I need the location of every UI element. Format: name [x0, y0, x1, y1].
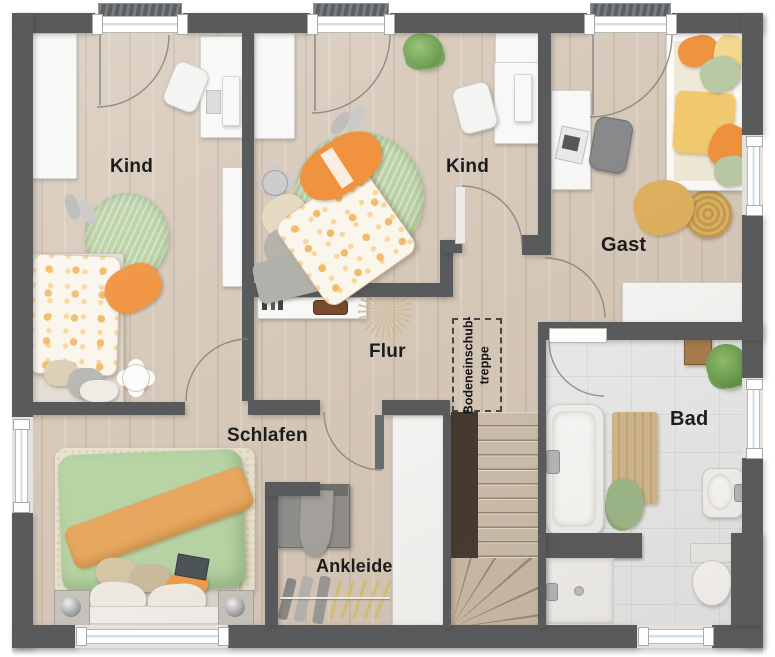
window-cap [307, 14, 318, 35]
room-label-kind-middle: Kind [446, 156, 489, 178]
laptop-keys [562, 134, 581, 151]
plant-icon [403, 33, 443, 69]
room-label-schlafen: Schlafen [227, 425, 308, 447]
wall-segment [248, 400, 320, 415]
stair-void [451, 412, 480, 558]
room-label-flur: Flur [369, 341, 406, 363]
bath-faucet-icon [546, 450, 560, 474]
window [641, 629, 710, 644]
window-cap [177, 14, 188, 35]
window [747, 142, 760, 210]
flower-side-table [262, 170, 288, 196]
window-cap [746, 379, 763, 390]
pillow [80, 380, 118, 402]
wall-segment [443, 415, 451, 628]
window [587, 16, 674, 33]
window-cap [76, 627, 87, 646]
stair-treads [478, 412, 538, 558]
keyboard-icon [206, 90, 221, 114]
room-label-ankleide: Ankleide [316, 556, 393, 577]
window-cap [13, 419, 30, 430]
wardrobe [222, 167, 244, 287]
window [80, 629, 225, 644]
wall-segment [183, 13, 310, 33]
wall-segment [382, 400, 450, 415]
wall-segment [12, 13, 33, 417]
sphere-lamp-icon [225, 597, 245, 617]
built-in-wardrobe [392, 415, 445, 627]
wall-segment [538, 340, 546, 628]
window-cap [13, 502, 30, 513]
stair-winders [451, 558, 538, 628]
sphere-lamp-icon [61, 597, 81, 617]
window-cap [384, 14, 395, 35]
window-cap [584, 14, 595, 35]
floor-plan: Bodeneinschub- treppe [0, 0, 775, 657]
wall-segment [228, 625, 637, 648]
door-leaf [549, 328, 607, 343]
wall-segment [265, 482, 278, 625]
wall-segment [522, 235, 538, 255]
window-cap [746, 136, 763, 147]
window-cap [218, 627, 229, 646]
clothes-rail [280, 597, 390, 599]
window-cap [666, 14, 677, 35]
wall-segment [12, 625, 75, 648]
room-label-kind-left: Kind [110, 156, 153, 178]
window-cap [703, 627, 714, 646]
window [95, 16, 185, 33]
wall-segment [731, 533, 763, 625]
staircase [451, 412, 538, 628]
wall-segment [265, 482, 320, 496]
shower-drain-icon [574, 586, 584, 596]
window [310, 16, 392, 33]
attic-stairs-marker: Bodeneinschub- treppe [452, 318, 502, 412]
wall-segment [742, 13, 763, 135]
window-cap [746, 205, 763, 216]
wall-segment [242, 33, 254, 401]
sideboard [622, 282, 744, 324]
monitor-icon [222, 76, 240, 126]
towels [606, 478, 644, 528]
window [15, 424, 28, 508]
wall-segment [33, 402, 185, 415]
bed-duvet [29, 254, 121, 377]
wall-segment [712, 625, 763, 648]
shower-faucet-icon [546, 583, 558, 601]
wardrobe [254, 33, 295, 139]
exterior-shadow [12, 648, 763, 656]
window-cap [638, 627, 649, 646]
room-label-bad: Bad [670, 408, 708, 431]
perfume-bottles-icon [278, 300, 283, 310]
room-label-gast: Gast [601, 234, 646, 257]
wardrobe [30, 33, 77, 179]
wall-segment [390, 13, 587, 33]
wall-segment [742, 215, 763, 378]
wall-segment [538, 33, 551, 255]
window [747, 385, 760, 453]
attic-stairs-label: Bodeneinschub- treppe [461, 316, 494, 414]
bath-bench [546, 533, 642, 558]
window-cap [92, 14, 103, 35]
flower-side-table [122, 364, 150, 392]
washbasin-bowl [707, 474, 733, 510]
door-leaf [375, 415, 384, 469]
door-leaf [455, 186, 466, 244]
monitor-icon [514, 74, 532, 122]
window-cap [746, 448, 763, 459]
mattress-edge [84, 606, 232, 624]
